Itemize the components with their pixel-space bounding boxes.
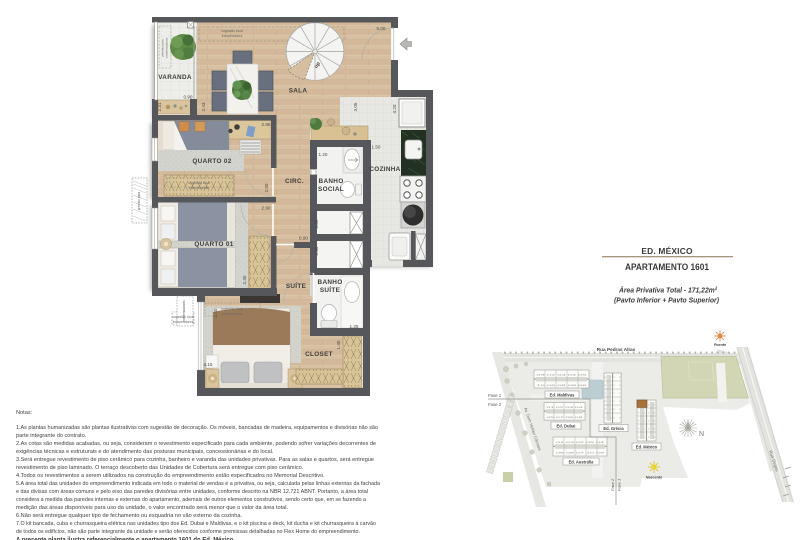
svg-text:06 08 07 10 09: 06 08 07 10 09 [556,453,607,455]
svg-text:considera a medida das paredes: considera a medida das paredes internas … [16,497,367,503]
svg-text:N: N [699,431,704,438]
svg-text:1.45: 1.45 [336,340,341,349]
svg-text:2.30: 2.30 [242,275,247,284]
svg-text:A presente planta ilustra refe: A presente planta ilustra referencialmen… [16,535,235,540]
svg-text:CIRC.: CIRC. [285,178,304,185]
svg-text:Fase 2: Fase 2 [488,402,502,407]
svg-text:previsto para: previsto para [137,192,141,211]
svg-text:Notas:: Notas: [16,410,33,416]
svg-text:Fase 2: Fase 2 [610,478,615,491]
svg-text:Poente: Poente [714,343,726,347]
svg-text:sugestão local: sugestão local [188,181,210,185]
svg-text:2.As cotas são medidas acabada: 2.As cotas são medidas acabadas, ou seja… [16,441,376,447]
svg-text:5.00: 5.00 [377,26,386,31]
svg-text:BANHO: BANHO [318,279,343,286]
svg-text:CLOSET: CLOSET [305,351,333,358]
svg-text:2.90: 2.90 [262,206,271,211]
svg-text:Ed. Maldivas: Ed. Maldivas [550,392,576,397]
svg-text:1.As plantas humanizadas são p: 1.As plantas humanizadas são plantas ilu… [16,425,378,431]
svg-text:Fase 1: Fase 1 [488,393,502,398]
svg-text:APARTAMENTO 1601: APARTAMENTO 1601 [625,261,709,272]
svg-text:VARANDA: VARANDA [158,74,192,81]
svg-text:1.20: 1.20 [319,152,328,157]
svg-text:sugestão local: sugestão local [221,29,243,33]
svg-text:exigências técnicas e estrutur: exigências técnicas e estruturais e do a… [16,449,274,455]
svg-text:BANHO: BANHO [319,178,344,185]
svg-text:Rua Pedras Altas: Rua Pedras Altas [597,347,636,352]
svg-text:2.30: 2.30 [314,246,319,255]
svg-text:3.05: 3.05 [353,102,358,111]
svg-text:0.90: 0.90 [184,95,193,100]
svg-text:2.95: 2.95 [262,122,271,127]
svg-text:01 03 02 05 04: 01 03 02 05 04 [556,442,607,444]
svg-text:condensadoras: condensadoras [165,37,169,58]
svg-text:05 07 06 08: 05 07 06 08 [547,417,585,419]
svg-text:COZINHA: COZINHA [369,166,400,173]
svg-text:sugestão local: sugestão local [172,315,194,319]
svg-text:independores: independores [222,34,243,38]
svg-text:Ed. México: Ed. México [636,444,658,449]
svg-text:SOCIAL: SOCIAL [318,186,344,193]
svg-text:7.O kit bancada, cuba e churra: 7.O kit bancada, cuba e churrasqueira el… [16,521,376,527]
svg-text:2.30: 2.30 [314,219,319,228]
svg-text:QUARTO 02: QUARTO 02 [192,158,231,165]
svg-text:2.31: 2.31 [157,102,162,111]
svg-text:Fase 1: Fase 1 [617,479,622,491]
svg-text:independores: independores [222,312,243,316]
svg-text:2.40: 2.40 [213,308,218,317]
svg-text:6.Não será entregue qualquer t: 6.Não será entregue qualquer tipo de fec… [16,513,243,519]
svg-text:(Pavto Inferior + Pavto Superi: (Pavto Inferior + Pavto Superior) [614,296,719,305]
svg-text:ED. MÉXICO: ED. MÉXICO [641,245,693,256]
svg-text:Ed. Austrália: Ed. Austrália [569,459,595,464]
svg-text:1.50: 1.50 [372,145,381,150]
svg-text:0.90: 0.90 [299,236,308,241]
svg-text:5.A área total das unidades do: 5.A área total das unidades do empreendi… [16,481,381,487]
svg-text:independores: independores [173,320,194,324]
svg-text:medição das áreas disponíveis: medição das áreas disponíveis para uso d… [16,505,289,511]
svg-text:4.15: 4.15 [204,362,213,367]
svg-text:4.20: 4.20 [392,104,397,113]
svg-text:Ed. Dubai: Ed. Dubai [557,423,576,428]
svg-text:3.Será entregue revestimento d: 3.Será entregue revestimento de piso cer… [16,457,374,463]
svg-text:03 02 04 04 05: 03 02 04 04 05 [537,375,590,377]
svg-text:SALA: SALA [289,88,308,95]
svg-text:SUÍTE: SUÍTE [286,281,307,290]
svg-text:2.43: 2.43 [201,102,206,111]
svg-text:Ed. Grécia: Ed. Grécia [603,426,624,431]
svg-text:independores: independores [189,186,210,190]
svg-text:Área Privativa Total - 171,22m: Área Privativa Total - 171,22m² [618,286,717,295]
svg-text:revestimento de piso laminado.: revestimento de piso laminado. O terraço… [16,465,304,471]
svg-text:2.00: 2.00 [264,183,269,192]
svg-text:SUÍTE: SUÍTE [320,285,341,294]
svg-text:1.25: 1.25 [350,324,359,329]
svg-text:e das divisas com áreas comuns: e das divisas com áreas comuns e pelo ei… [16,489,368,495]
svg-text:10 06 08 09 06: 10 06 08 09 06 [537,385,590,387]
svg-text:QUARTO 01: QUARTO 01 [194,241,233,248]
svg-text:parte integrante do contrato.: parte integrante do contrato. [16,433,87,439]
svg-text:Nascente: Nascente [646,476,662,480]
svg-text:sugestão local: sugestão local [221,307,243,311]
svg-text:01 02 03 04: 01 02 03 04 [547,407,585,409]
svg-text:4.Todos os revestimentos a ser: 4.Todos os revestimentos a serem utiliza… [16,473,325,479]
